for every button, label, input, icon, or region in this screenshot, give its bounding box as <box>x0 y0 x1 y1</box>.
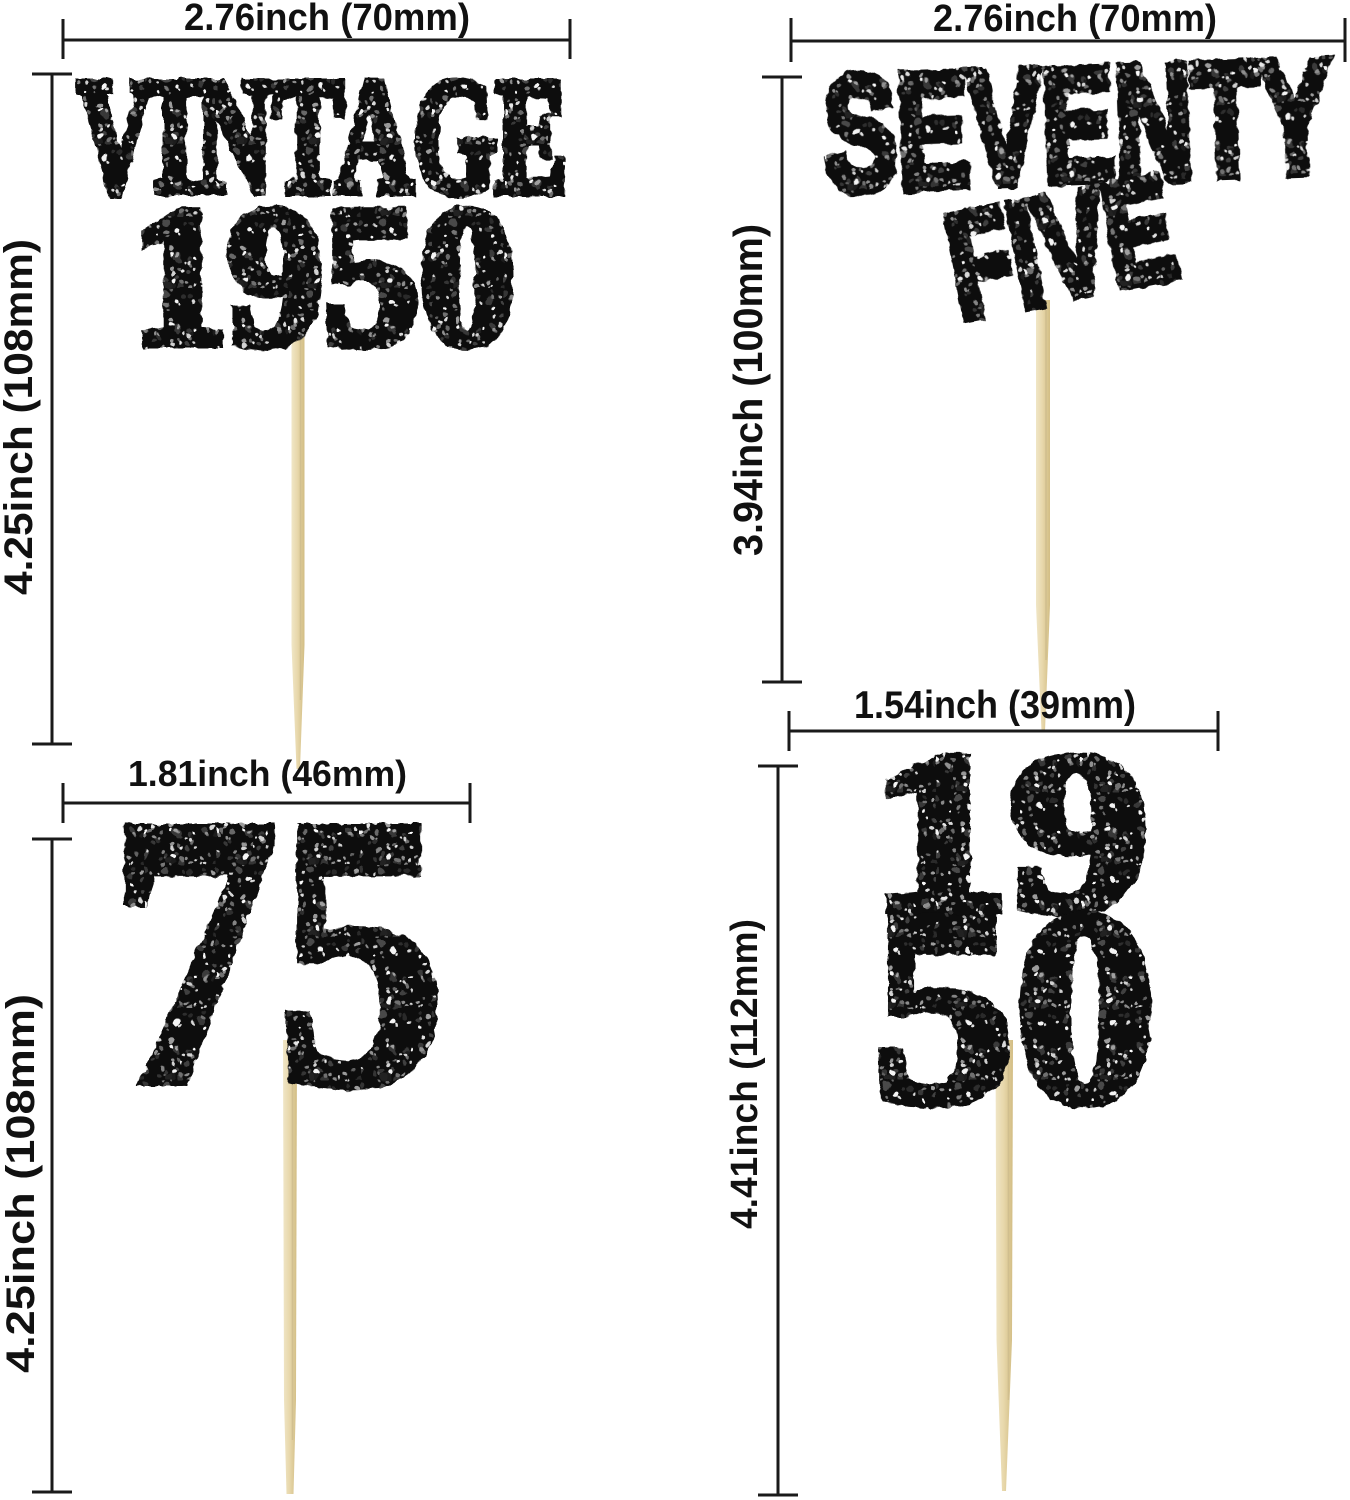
svg-text:4.25inch (108mm): 4.25inch (108mm) <box>0 239 41 595</box>
svg-text:75: 75 <box>110 739 445 1165</box>
svg-text:3.94inch (100mm): 3.94inch (100mm) <box>725 224 771 556</box>
svg-text:4.41inch (112mm): 4.41inch (112mm) <box>724 919 766 1229</box>
svg-text:4.25inch (108mm): 4.25inch (108mm) <box>0 994 43 1373</box>
svg-text:1950: 1950 <box>132 167 515 387</box>
svg-text:2.76inch (70mm): 2.76inch (70mm) <box>184 0 470 39</box>
svg-text:50: 50 <box>873 854 1156 1160</box>
